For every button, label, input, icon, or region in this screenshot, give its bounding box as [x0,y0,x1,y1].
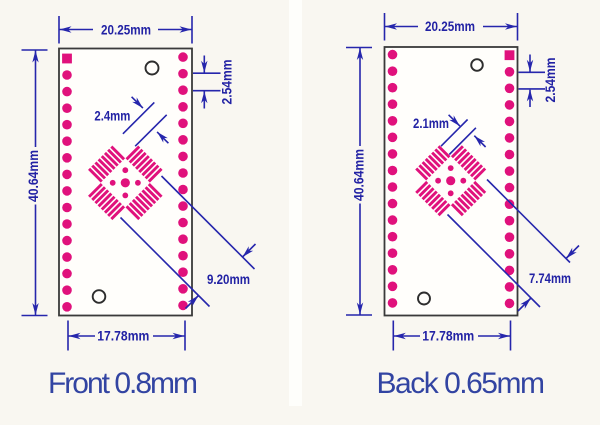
svg-text:17.78mm: 17.78mm [422,328,474,344]
svg-text:2.4mm: 2.4mm [94,108,130,124]
svg-text:9.20mm: 9.20mm [207,271,250,287]
svg-text:Front 0.8mm: Front 0.8mm [48,367,197,400]
svg-text:7.74mm: 7.74mm [529,270,571,286]
svg-text:2.54mm: 2.54mm [218,60,234,105]
svg-text:20.25mm: 20.25mm [101,22,151,38]
svg-text:2.54mm: 2.54mm [542,58,558,103]
svg-text:2.1mm: 2.1mm [413,115,449,131]
svg-text:40.64mm: 40.64mm [25,150,41,202]
svg-text:40.64mm: 40.64mm [351,149,367,201]
svg-text:Back 0.65mm: Back 0.65mm [377,367,544,400]
svg-text:20.25mm: 20.25mm [425,18,475,34]
svg-text:17.78mm: 17.78mm [97,328,149,344]
